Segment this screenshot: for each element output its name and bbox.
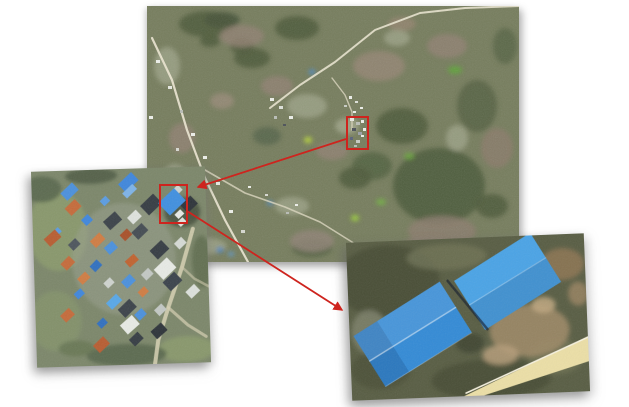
building-closeup-inset xyxy=(346,233,590,400)
figure-canvas xyxy=(0,0,629,407)
texture-overlay xyxy=(346,233,590,400)
closeup-satellite-image xyxy=(346,233,590,400)
village-satellite-image xyxy=(31,166,211,367)
village-zoom-inset xyxy=(31,166,211,367)
texture-overlay xyxy=(31,166,211,367)
